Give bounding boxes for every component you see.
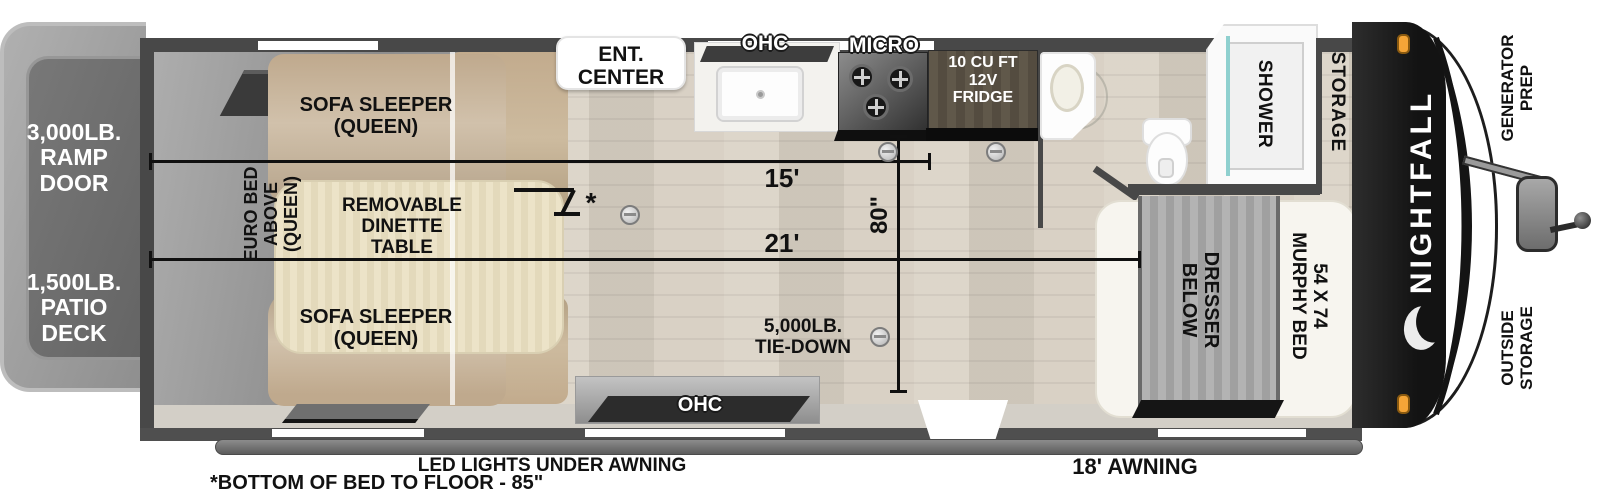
awning-bar <box>215 439 1363 455</box>
sofa-sleeper-top-label: SOFA SLEEPER (QUEEN) <box>286 94 466 138</box>
burner-icon <box>863 94 889 120</box>
refrigerator-label: 10 CU FT 12V FRIDGE <box>928 54 1038 107</box>
tie-down-label: 5,000LB. TIE-DOWN <box>736 317 870 359</box>
cooktop <box>838 52 928 134</box>
bath-sink-icon <box>1050 64 1084 112</box>
burner-icon <box>887 66 913 92</box>
euro-bed-label: EURO BED ABOVE (QUEEN) <box>202 144 342 284</box>
wall-rear <box>140 38 154 430</box>
generator-prep-label: GENERATOR PREP <box>1448 18 1588 158</box>
marker-light-icon <box>1397 394 1410 414</box>
dimension-15ft-label: 15' <box>742 164 822 193</box>
entry-door <box>916 400 1010 441</box>
garage-step-mat <box>282 404 430 423</box>
toilet-seat <box>1158 158 1174 178</box>
sink-drain-icon <box>756 90 765 99</box>
tie-down-anchor-icon <box>870 327 890 347</box>
bath-wall <box>1128 184 1320 195</box>
window <box>258 41 378 50</box>
tie-down-anchor-icon <box>986 142 1006 162</box>
floorplan-diagram: * <box>0 0 1600 492</box>
ohc-bottom-label: OHC <box>660 394 740 416</box>
tie-down-anchor-icon <box>620 205 640 225</box>
tie-down-anchor-icon <box>878 142 898 162</box>
bedroom-step-mat <box>1132 400 1284 418</box>
bed-floor-note: *BOTTOM OF BED TO FLOOR - 85" <box>210 472 610 492</box>
dimension-21ft-label: 21' <box>742 229 822 258</box>
bed-height-asterisk: * <box>576 188 606 219</box>
awning-length-label: 18' AWNING <box>1045 455 1225 479</box>
hitch-ball-icon <box>1574 212 1591 229</box>
dimension-80in-label: 80" <box>830 165 930 265</box>
outside-storage-label: OUTSIDE STORAGE <box>1448 278 1588 418</box>
cooktop-front-band <box>834 130 932 141</box>
patio-deck-label: 1,500LB. PATIO DECK <box>6 270 142 346</box>
window <box>272 429 424 437</box>
window <box>585 429 785 437</box>
window <box>1158 429 1306 437</box>
sofa-sleeper-bottom-label: SOFA SLEEPER (QUEEN) <box>286 306 466 350</box>
ramp-door-label: 3,000LB. RAMP DOOR <box>6 120 142 196</box>
refrigerator-front-band <box>926 128 1040 141</box>
entertainment-center-label: ENT. CENTER <box>556 43 686 89</box>
ohc-top-label: OHC <box>710 32 820 55</box>
microwave-label: MICRO <box>836 34 932 57</box>
burner-icon <box>849 64 875 90</box>
